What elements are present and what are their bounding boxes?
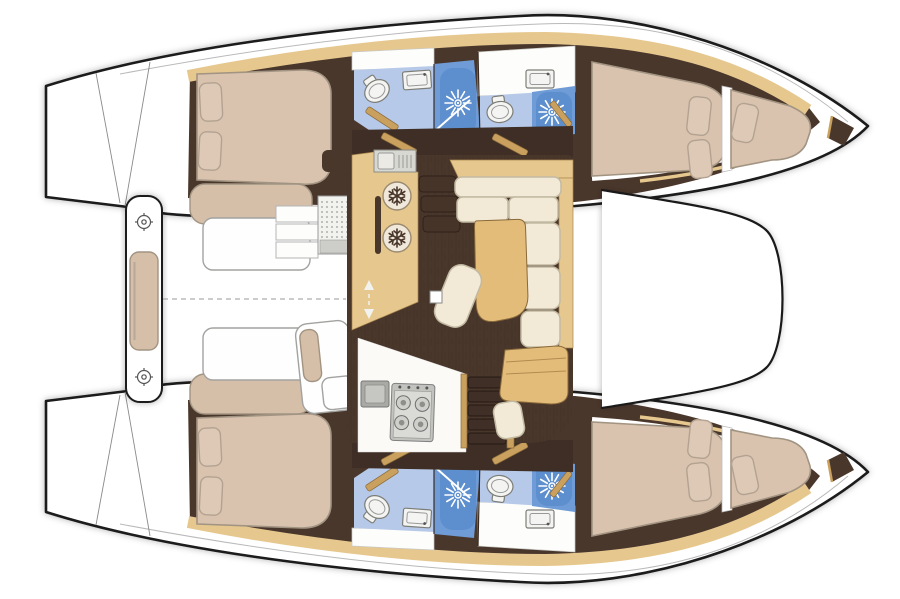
galley-sink-bowl — [378, 153, 394, 169]
sofa-back-cushion — [455, 177, 561, 197]
sofa-seat — [521, 311, 560, 347]
entry-step — [421, 196, 458, 212]
dining-table — [473, 219, 528, 322]
helm-step — [276, 242, 318, 258]
helm-step — [276, 206, 318, 222]
boat-floor-plan — [0, 0, 900, 599]
foredeck-trampoline — [602, 190, 783, 408]
aft-crossbeam — [126, 196, 162, 402]
entry-step — [419, 176, 456, 192]
sofa-seat — [509, 197, 558, 222]
nav-seat-cushion — [492, 400, 526, 440]
sofa-back-counter — [450, 160, 573, 179]
sofa-seat — [457, 197, 508, 222]
stove — [390, 383, 435, 441]
salon — [322, 150, 573, 452]
entry-step — [423, 216, 460, 232]
stair-rail — [461, 374, 467, 448]
galley-handle-rail — [375, 196, 381, 254]
helm-step — [276, 224, 318, 240]
mast-post — [430, 291, 442, 303]
nav-seat-wood — [500, 346, 568, 404]
sofa-side-counter — [559, 178, 573, 348]
salon-entry-step — [322, 150, 352, 172]
worktop-sink-bowl — [365, 385, 385, 403]
